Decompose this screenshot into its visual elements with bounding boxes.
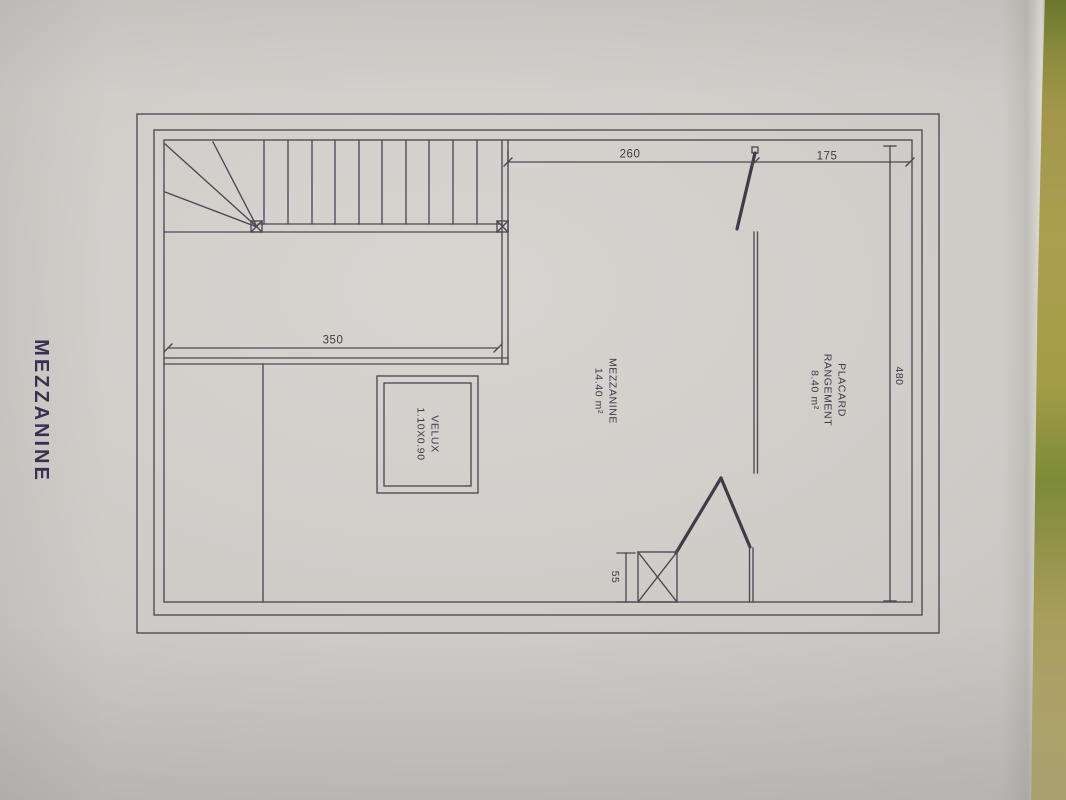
room-name: RANGEMENT bbox=[820, 354, 834, 427]
placard-partition bbox=[754, 232, 758, 473]
dim-260: 260 bbox=[620, 148, 641, 163]
dim-175: 175 bbox=[817, 150, 838, 165]
room-area: 14.40 m² bbox=[591, 358, 605, 424]
photo-of-floor-plan: MEZZANINE MEZZANINE 14.40 m² PLACARD RAN… bbox=[0, 0, 1066, 800]
duct-box bbox=[638, 552, 677, 602]
room-name: MEZZANINE bbox=[605, 358, 619, 424]
newel-post bbox=[251, 221, 262, 232]
room-label-mezzanine: MEZZANINE 14.40 m² bbox=[591, 358, 618, 424]
window-size: 1.10X0.90 bbox=[413, 407, 427, 460]
door-bottom bbox=[676, 478, 753, 602]
velux-label: VELUX 1.10X0.90 bbox=[413, 407, 440, 460]
room-label-placard: PLACARD RANGEMENT 8.40 m² bbox=[807, 354, 848, 427]
dim-350: 350 bbox=[323, 334, 344, 349]
staircase bbox=[164, 141, 508, 232]
wall-inner bbox=[164, 140, 912, 602]
dim-55: 55 bbox=[607, 571, 621, 584]
dimension-lines bbox=[164, 146, 914, 602]
room-name: PLACARD bbox=[834, 354, 848, 427]
room-area: 8.40 m² bbox=[807, 354, 821, 427]
door-top bbox=[737, 147, 758, 229]
window-name: VELUX bbox=[427, 407, 441, 460]
plan-title: MEZZANINE bbox=[28, 339, 54, 483]
plan-linework bbox=[0, 0, 1066, 800]
dim-480: 480 bbox=[891, 366, 905, 385]
stairwell-opening bbox=[164, 141, 508, 364]
